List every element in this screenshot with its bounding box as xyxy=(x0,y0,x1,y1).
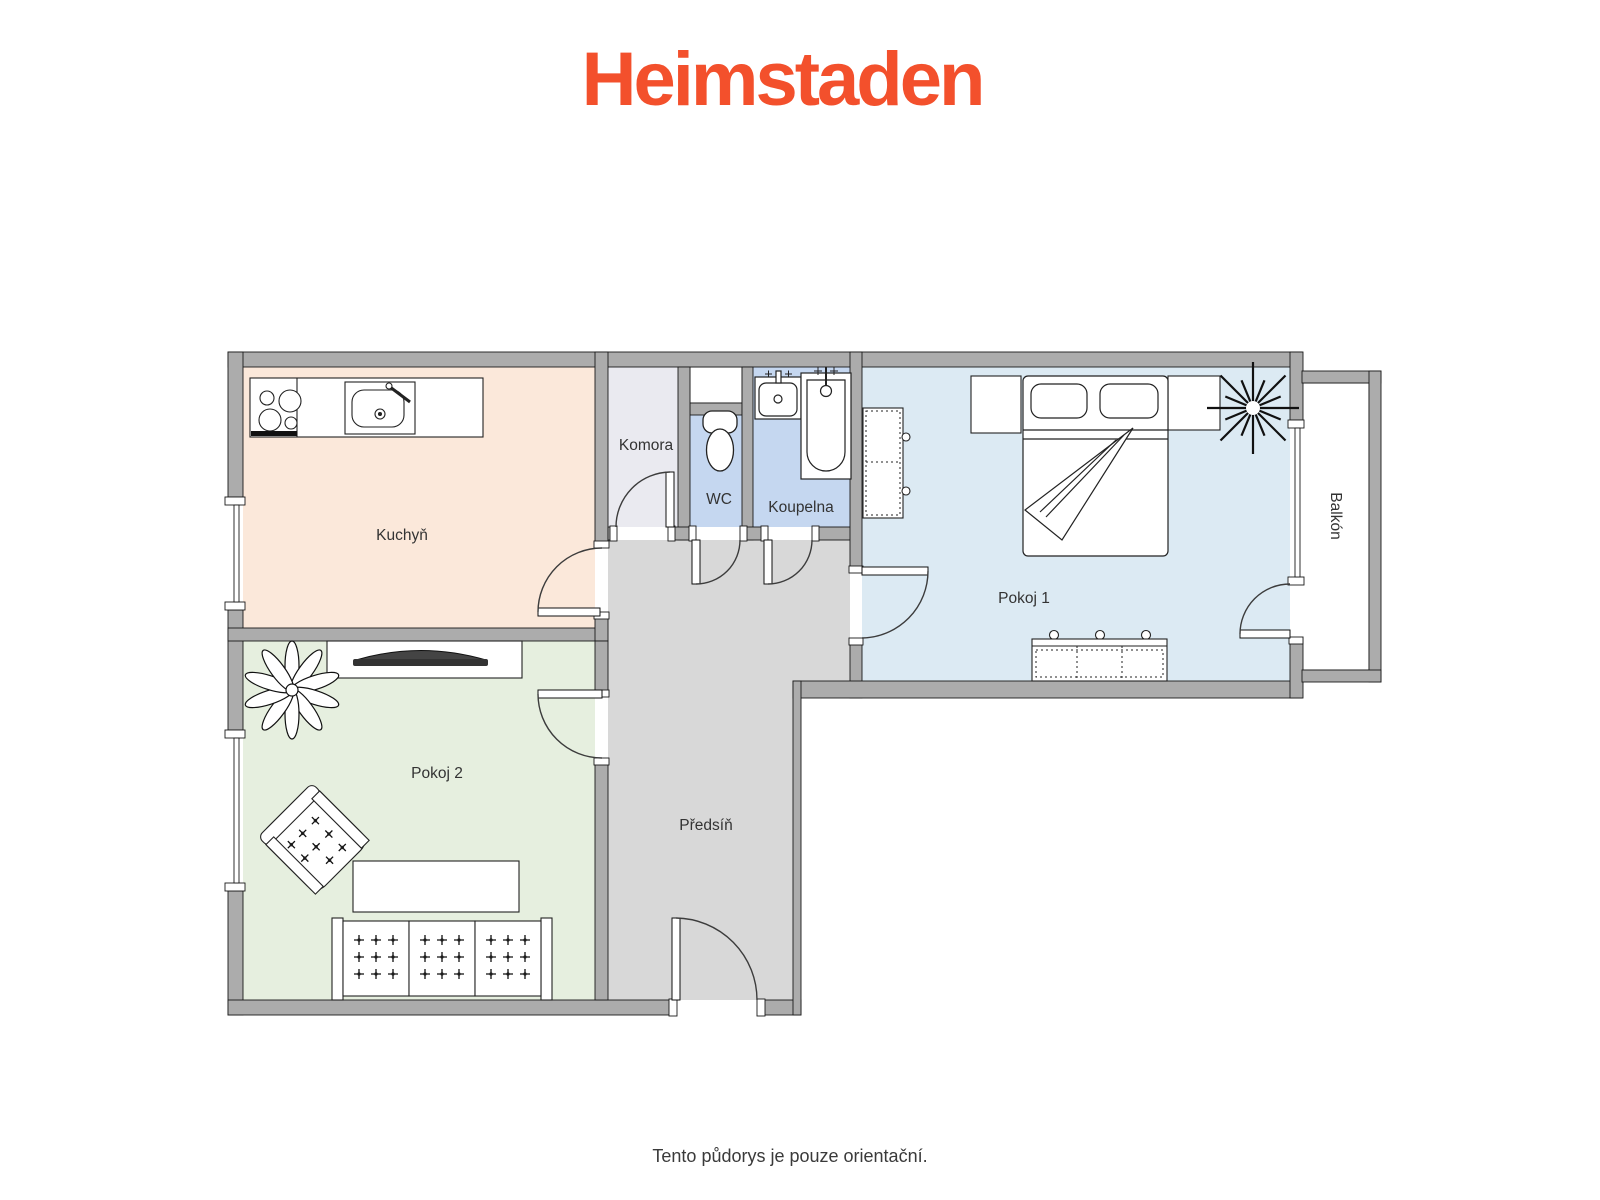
nightstand-left-symbol xyxy=(971,376,1021,433)
kitchen-counter-symbol xyxy=(250,378,483,437)
disclaimer-caption: Tento půdorys je pouze orientační. xyxy=(0,1146,1590,1167)
tv-stand-symbol xyxy=(327,641,522,678)
bathtub-symbol xyxy=(801,367,851,479)
room-label-pokoj2: Pokoj 2 xyxy=(411,765,463,782)
plant-pokoj1-symbol xyxy=(1207,362,1299,454)
washbasin-symbol xyxy=(755,371,801,420)
room-label-kuchyn: Kuchyň xyxy=(376,527,428,544)
floor-plan: Kuchyň Komora WC Koupelna Pokoj 1 Pokoj … xyxy=(0,0,1600,1200)
wardrobe-symbol xyxy=(863,408,910,518)
nightstand-right-symbol xyxy=(1168,376,1220,430)
room-predsin xyxy=(608,540,850,1000)
double-bed-symbol xyxy=(1023,376,1168,556)
room-label-pokoj1: Pokoj 1 xyxy=(998,590,1050,607)
dresser-symbol xyxy=(1032,631,1167,682)
room-label-wc: WC xyxy=(706,491,732,508)
room-label-balkon: Balkón xyxy=(1327,492,1344,539)
room-label-komora: Komora xyxy=(619,437,674,454)
room-label-predsin: Předsíň xyxy=(679,817,732,834)
room-label-koupelna: Koupelna xyxy=(768,499,834,516)
sofa-symbol xyxy=(332,918,552,1000)
kitchen-sink-symbol xyxy=(345,382,415,434)
coffee-table-symbol xyxy=(353,861,519,912)
wc-shaft xyxy=(690,367,742,415)
